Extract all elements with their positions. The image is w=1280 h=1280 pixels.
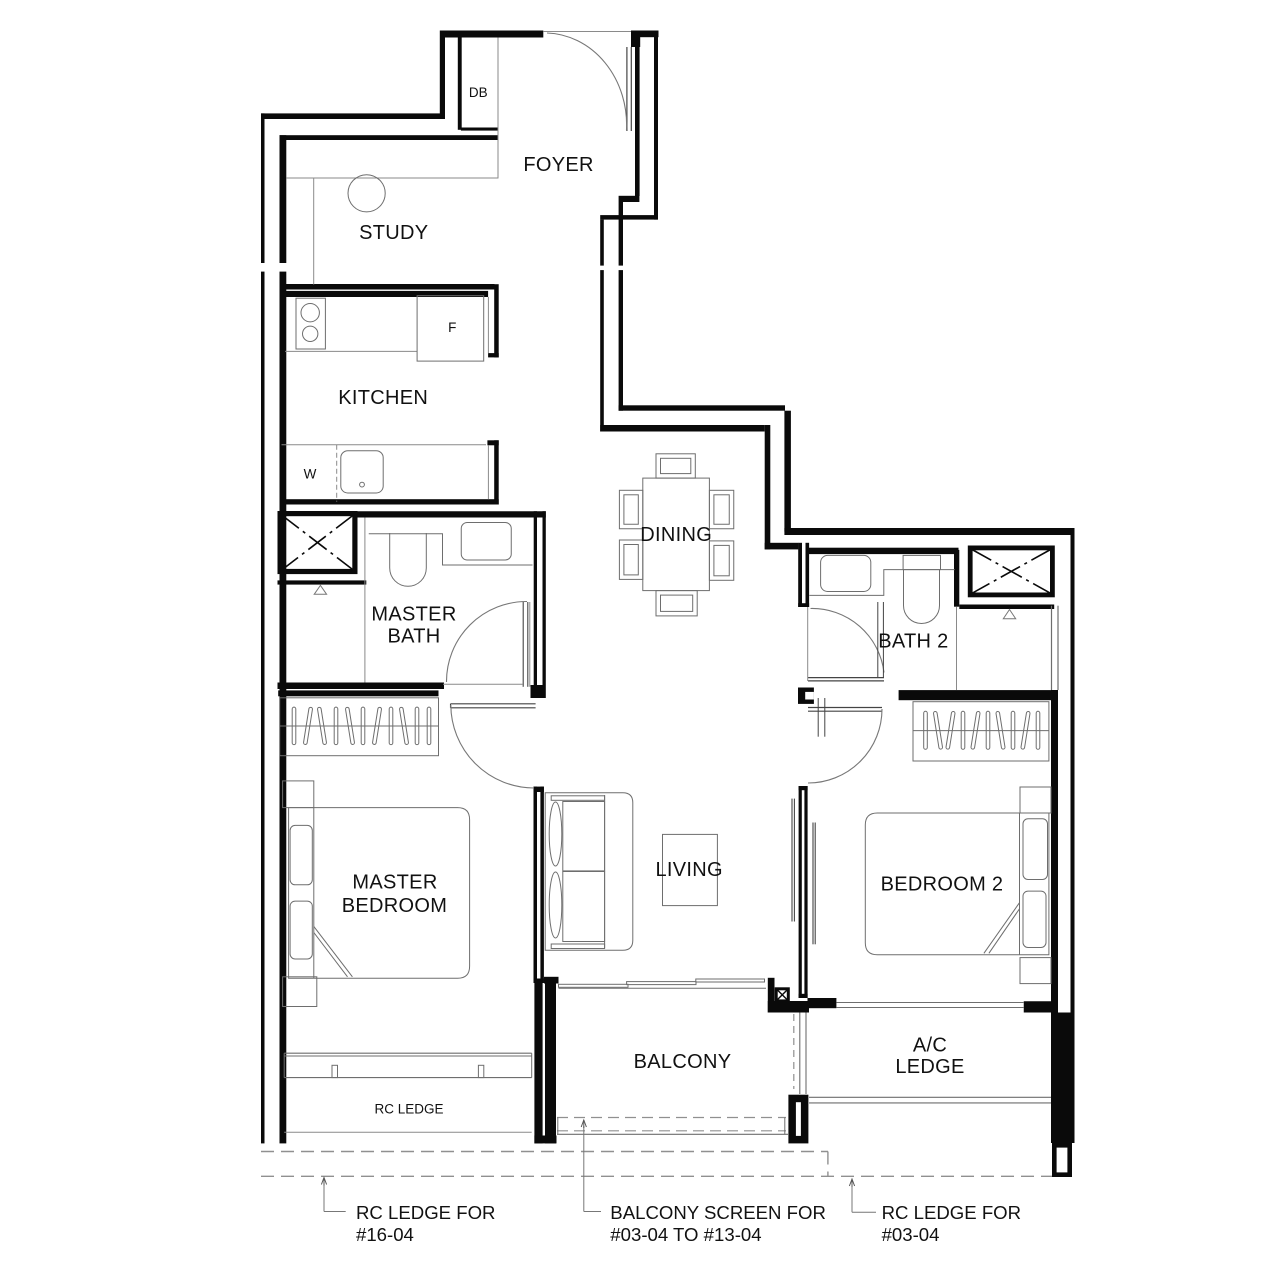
svg-text:RC LEDGE: RC LEDGE (374, 1101, 443, 1116)
svg-text:MASTER: MASTER (352, 872, 437, 894)
svg-text:BEDROOM: BEDROOM (342, 895, 447, 917)
svg-text:BATH 2: BATH 2 (878, 630, 948, 652)
svg-text:BEDROOM 2: BEDROOM 2 (881, 874, 1004, 896)
svg-text:DB: DB (469, 85, 488, 100)
svg-text:LEDGE: LEDGE (895, 1056, 964, 1078)
svg-text:DINING: DINING (640, 524, 712, 546)
svg-text:BATH: BATH (387, 626, 440, 648)
svg-text:W: W (304, 467, 317, 482)
svg-text:RC LEDGE FOR: RC LEDGE FOR (882, 1202, 1021, 1223)
svg-text:MASTER: MASTER (371, 603, 456, 625)
svg-text:LIVING: LIVING (656, 859, 723, 881)
svg-text:#03-04 TO #13-04: #03-04 TO #13-04 (610, 1224, 761, 1245)
svg-text:KITCHEN: KITCHEN (338, 387, 428, 409)
svg-text:FOYER: FOYER (523, 154, 593, 176)
svg-text:F: F (448, 320, 456, 335)
svg-text:BALCONY: BALCONY (634, 1051, 732, 1073)
svg-text:#03-04: #03-04 (882, 1224, 940, 1245)
svg-text:#16-04: #16-04 (356, 1224, 414, 1245)
svg-text:STUDY: STUDY (359, 222, 428, 244)
svg-text:A/C: A/C (913, 1034, 947, 1056)
svg-text:RC LEDGE FOR: RC LEDGE FOR (356, 1202, 495, 1223)
svg-text:BALCONY SCREEN FOR: BALCONY SCREEN FOR (610, 1202, 826, 1223)
